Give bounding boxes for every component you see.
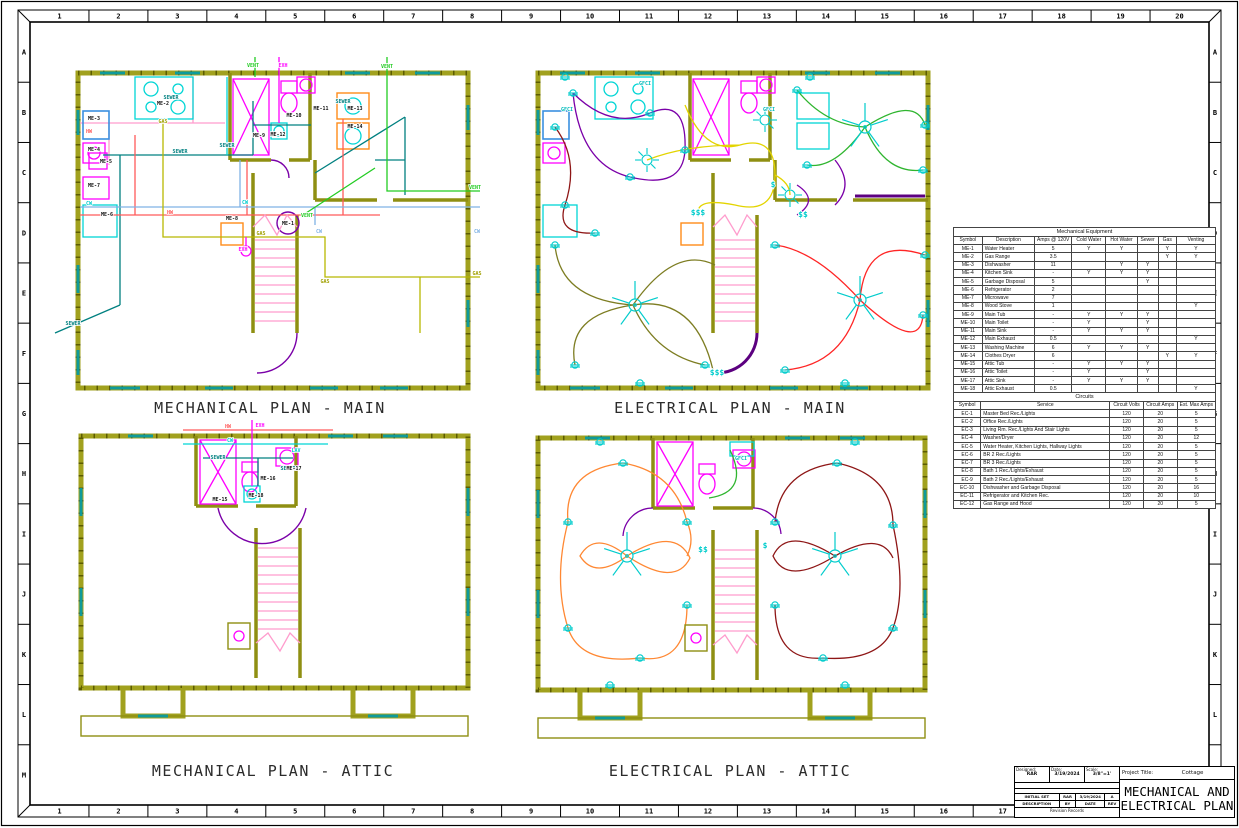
scale-cell: Scale: 3/8"=1' (1085, 767, 1119, 782)
plan-label: ME-16 (260, 476, 275, 482)
grid-reference-label: 10 (586, 808, 594, 816)
grid-reference-label: E (22, 290, 26, 298)
plan-label: ME-2 (157, 101, 169, 107)
plan-label: ME-8 (226, 216, 238, 222)
grid-reference-label: 14 (822, 808, 830, 816)
grid-reference-label: 9 (529, 13, 533, 21)
plan-label: CW (86, 201, 93, 207)
grid-reference-label: 8 (470, 808, 474, 816)
table-row: EC-8Bath 1 Rec./Lights/Exhaust120205 (954, 467, 1216, 475)
grid-reference-label: 11 (645, 808, 653, 816)
grid-reference-label: 11 (645, 13, 653, 21)
plan-label: GFCI (639, 81, 651, 87)
table-row: ME-5Garbage Disposal5Y (954, 278, 1216, 286)
plan-label: HW (225, 424, 232, 430)
revision-date: 3/19/2024 (1076, 794, 1105, 800)
date-value: 3/19/2024 (1051, 772, 1083, 777)
grid-reference-label: 3 (175, 13, 179, 21)
plan-label: GFCI (763, 107, 775, 113)
grid-reference-label: H (22, 470, 26, 478)
grid-reference-label: K (1213, 651, 1218, 659)
grid-reference-label: 7 (411, 808, 415, 816)
plan-label: GAS (256, 231, 265, 237)
plan-label: SEWER (335, 99, 351, 105)
table-row: EC-6BR 2 Rec./Lights120205 (954, 451, 1216, 459)
designed-value: RAR (1016, 772, 1048, 777)
plan-label: GAS (472, 271, 481, 277)
table-row: ME-10Main Toilet-YY (954, 319, 1216, 327)
plan-label: $ (771, 180, 776, 189)
table-row: EC-3Living Rm. Rec./Lights And Stair Lig… (954, 426, 1216, 434)
grid-reference-label: 13 (763, 808, 771, 816)
revision-description: INITIAL SET (1015, 794, 1060, 800)
plan-label: LAV (291, 448, 300, 454)
mech-main-title: MECHANICAL PLAN - MAIN (50, 399, 490, 417)
table-row: ME-12Main Exhaust0.5Y (954, 335, 1216, 343)
grid-reference-label: 5 (293, 808, 297, 816)
plan-label: EXH (278, 63, 287, 69)
plan-label: CW (474, 229, 481, 235)
table-row: ME-13Washing Machine6YYY (954, 344, 1216, 352)
grid-reference-label: 2 (116, 13, 120, 21)
plan-label: SEWER (210, 455, 226, 461)
sheet-title-line1: MECHANICAL AND (1120, 785, 1234, 799)
revision-rev: A (1105, 794, 1119, 800)
grid-reference-label: A (1213, 49, 1218, 57)
plan-label: EXH (255, 423, 264, 429)
title-block-right: Project Title: Cottage MECHANICAL AND EL… (1120, 767, 1234, 817)
grid-reference-label: A (22, 49, 27, 57)
plan-label: VENT (247, 63, 259, 69)
table-row: EC-1Master Bed Rec./Lights120205 (954, 410, 1216, 418)
plan-label: VENT (301, 213, 313, 219)
table-row: ME-3Dishwasher11YY (954, 261, 1216, 269)
plan-label: CW (227, 438, 234, 444)
table-row: ME-9Main Tub-YYY (954, 311, 1216, 319)
table-row: EC-2Office Rec./Lights120205 (954, 418, 1216, 426)
plan-label: ME-12 (270, 132, 285, 138)
revision-by: RAR (1060, 794, 1077, 800)
plan-label: HW (167, 210, 174, 216)
grid-reference-label: 13 (763, 13, 771, 21)
table-row: ME-11Main Sink-YYY (954, 327, 1216, 335)
electrical-plan-attic-drawing: GFCI$$$ (510, 425, 950, 765)
designed-cell: Designed: RAR (1015, 767, 1050, 782)
refrigerator-fixture (83, 205, 117, 237)
grid-reference-label: 20 (1175, 13, 1183, 21)
plan-label: GAS (158, 119, 167, 125)
grid-reference-label: 12 (704, 808, 712, 816)
grid-reference-label: 7 (411, 13, 415, 21)
grid-reference-label: 16 (940, 808, 948, 816)
plan-label: GFCI (735, 456, 747, 462)
grid-reference-label: M (22, 771, 26, 779)
grid-reference-label: C (22, 169, 26, 177)
grid-reference-label: F (22, 350, 26, 358)
grid-reference-label: 5 (293, 13, 297, 21)
main-sink-fixture (297, 77, 315, 93)
grid-reference-label: 4 (234, 13, 238, 21)
table-title-row: Circuits (954, 393, 1216, 402)
plan-label: SEWER (172, 149, 188, 155)
revision-records-label: Revision Records (1015, 808, 1119, 817)
grid-reference-label: 4 (234, 808, 238, 816)
plan-label: SEWER (219, 143, 235, 149)
plan-label: $$ (798, 210, 808, 219)
table-row: ME-6Refrigerator2 (954, 286, 1216, 294)
revision-entry-row: INITIAL SET RAR 3/19/2024 A (1015, 794, 1119, 801)
table-row: ME-1Water Heater5YYYY (954, 245, 1216, 253)
elec-main-title: ELECTRICAL PLAN - MAIN (510, 399, 950, 417)
table-row: ME-8Wood Stove1Y (954, 302, 1216, 310)
plan-label: $ (763, 541, 768, 550)
plan-label: GAS (320, 279, 329, 285)
grid-reference-label: L (22, 711, 26, 719)
revision-header-by: BY (1060, 801, 1077, 807)
drawing-sheet: { "sheet": { "columns": ["1","2","3","4"… (0, 0, 1239, 828)
table-row: EC-10Dishwasher and Garbage Disposal1202… (954, 484, 1216, 492)
table-header-row: SymbolDescriptionAmps @ 120VCold WaterHo… (954, 236, 1216, 244)
grid-reference-label: 6 (352, 13, 356, 21)
grid-reference-label: 16 (940, 13, 948, 21)
grid-reference-label: G (22, 410, 26, 418)
plan-label: ME-4 (88, 147, 100, 153)
grid-reference-label: 2 (116, 808, 120, 816)
grid-reference-label: K (22, 651, 27, 659)
main-tub-fixture (233, 79, 269, 155)
attic-tub-fixture (200, 440, 236, 504)
electrical-plan-main-drawing: GFCIGFCIGFCI$$$$$$$$$ (510, 60, 950, 400)
plan-label: $$$ (691, 208, 706, 217)
plan-label: ME-18 (248, 493, 263, 499)
grid-reference-label: 19 (1116, 13, 1124, 21)
project-title-value: Cottage (1153, 770, 1232, 776)
plan-label: ME-13 (347, 106, 362, 112)
table-row: EC-9Bath 2 Rec./Lights/Exhaust120205 (954, 476, 1216, 484)
grid-reference-label: 18 (1057, 13, 1065, 21)
revision-header-row: DESCRIPTION BY DATE REV (1015, 801, 1119, 808)
table-row: ME-14Clothes Dryer6YY (954, 352, 1216, 360)
grid-reference-label: 1 (57, 13, 61, 21)
plan-label: ME-11 (313, 106, 328, 112)
table-row: EC-11Refrigerator and Kitchen Rec.120201… (954, 492, 1216, 500)
grid-reference-label: 15 (881, 13, 889, 21)
grid-reference-label: C (1213, 169, 1217, 177)
grid-reference-label: J (1213, 591, 1217, 599)
grid-reference-label: B (22, 109, 26, 117)
plan-label: ME-1 (282, 221, 294, 227)
plan-label: $$$ (710, 368, 725, 377)
plan-label: SEWER (65, 321, 81, 327)
mechanical-plan-main-drawing: VENTEXHVENTSEWERSEWERME-2GASME-3HWME-9ME… (50, 60, 490, 400)
plan-label: ME-14 (347, 124, 362, 130)
plan-label: ME-15 (212, 497, 227, 503)
chimney (228, 623, 250, 649)
grid-reference-label: 17 (998, 13, 1006, 21)
grid-reference-label: L (1213, 711, 1217, 719)
plan-label: ME-9 (253, 133, 265, 139)
table-row: ME-16Attic Toilet-YY (954, 368, 1216, 376)
grid-reference-label: 15 (881, 808, 889, 816)
circuits-table: CircuitsSymbolServiceCircuit VoltsCircui… (953, 392, 1216, 509)
plan-label: VENT (469, 185, 481, 191)
title-block-left: Designed: RAR Date: 3/19/2024 Scale: 3/8… (1015, 767, 1120, 817)
plan-label: $$ (698, 545, 708, 554)
grid-reference-label: 8 (470, 13, 474, 21)
grid-reference-label: 6 (352, 808, 356, 816)
grid-reference-label: 3 (175, 808, 179, 816)
plan-label: VENT (381, 64, 393, 70)
plan-label: ME-6 (101, 212, 113, 218)
table-header-row: SymbolServiceCircuit VoltsCircuit AmpsEs… (954, 401, 1216, 409)
plan-label: ME-5 (100, 159, 112, 165)
sheet-title: MECHANICAL AND ELECTRICAL PLAN (1120, 780, 1234, 817)
elec-attic-title: ELECTRICAL PLAN - ATTIC (510, 762, 950, 780)
grid-reference-label: 1 (57, 808, 61, 816)
grid-reference-label: B (1213, 109, 1217, 117)
sheet-title-line2: ELECTRICAL PLAN (1120, 799, 1234, 813)
grid-reference-label: 14 (822, 13, 830, 21)
grid-reference-label: I (22, 530, 26, 538)
mech-attic-title: MECHANICAL PLAN - ATTIC (53, 762, 493, 780)
grid-reference-label: 9 (529, 808, 533, 816)
plan-label: CW (242, 200, 249, 206)
revision-header-rev: REV (1105, 801, 1119, 807)
plan-label: ME-10 (286, 113, 301, 119)
plan-label: ME-17 (286, 466, 301, 472)
table-row: EC-12Gas Range and Hood120205 (954, 500, 1216, 508)
table-row: ME-4Kitchen Sink-YYY (954, 269, 1216, 277)
table-row: ME-2Gas Range3.5YY (954, 253, 1216, 261)
main-toilet-fixture (281, 81, 297, 113)
table-row: ME-17Attic Sink-YYY (954, 377, 1216, 385)
grid-reference-label: 12 (704, 13, 712, 21)
table-row: EC-4Washer/Dryer1202012 (954, 434, 1216, 442)
plan-label: GFCI (561, 107, 573, 113)
plan-label: CW (316, 229, 323, 235)
mechanical-plan-attic-drawing: EXHHWCWSEWERSEWERLAVME-17ME-16ME-18ME-15 (53, 423, 493, 763)
grid-reference-label: 10 (586, 13, 594, 21)
table-row: ME-15Attic Tub-YYY (954, 360, 1216, 368)
revision-header-description: DESCRIPTION (1015, 801, 1060, 807)
grid-reference-label: 17 (998, 808, 1006, 816)
plan-label: ME-7 (88, 183, 100, 189)
grid-reference-label: I (1213, 530, 1217, 538)
table-row: ME-7Microwave7 (954, 294, 1216, 302)
date-cell: Date: 3/19/2024 (1050, 767, 1085, 782)
title-block: Designed: RAR Date: 3/19/2024 Scale: 3/8… (1014, 766, 1235, 818)
table-row: EC-5Water Heater, Kitchen Lights, Hallwa… (954, 443, 1216, 451)
project-title-label: Project Title: (1122, 770, 1153, 776)
scale-value: 3/8"=1' (1086, 772, 1118, 777)
plan-label: HW (86, 129, 93, 135)
revision-header-date: DATE (1076, 801, 1105, 807)
plan-label: ME-3 (88, 116, 100, 122)
table-title-row: Mechanical Equipment (954, 228, 1216, 237)
grid-reference-label: D (22, 229, 26, 237)
mechanical-equipment-table: Mechanical EquipmentSymbolDescriptionAmp… (953, 227, 1216, 394)
grid-reference-label: J (22, 591, 26, 599)
plan-label: EXH (238, 247, 247, 253)
table-row: EC-7BR 3 Rec./Lights120205 (954, 459, 1216, 467)
